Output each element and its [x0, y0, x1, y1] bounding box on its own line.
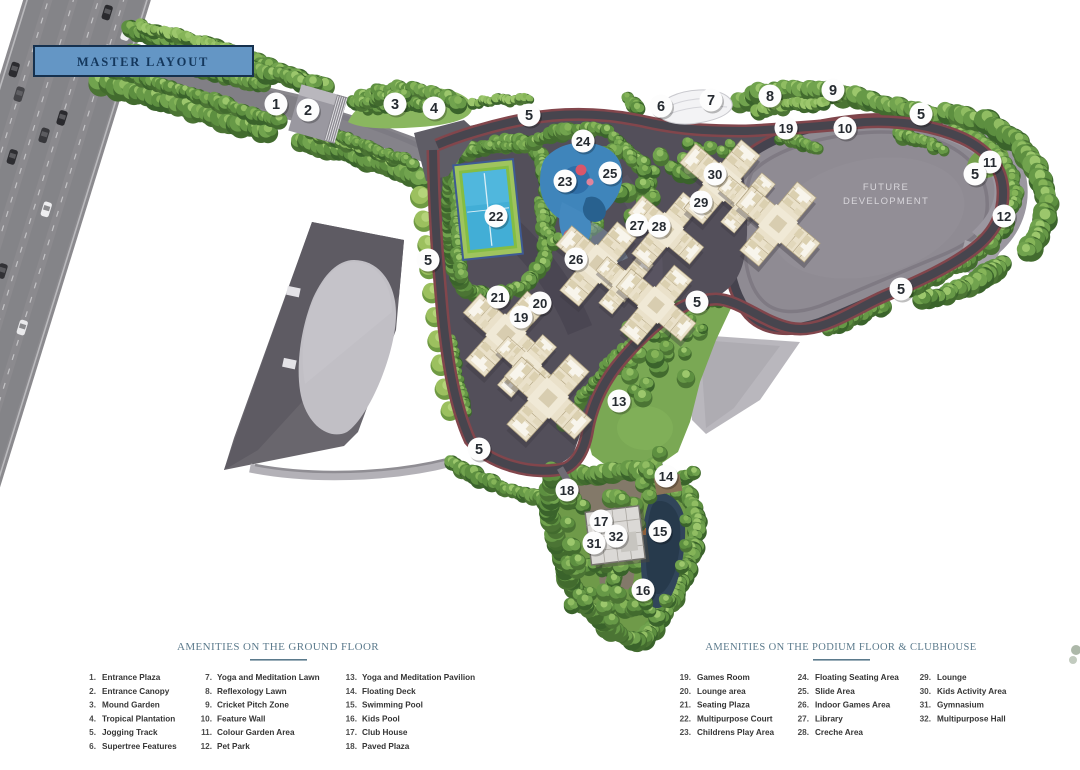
svg-text:5: 5	[693, 295, 701, 311]
svg-text:32: 32	[609, 529, 624, 544]
svg-text:7: 7	[707, 93, 715, 109]
svg-text:Library: Library	[815, 714, 843, 723]
svg-text:18.: 18.	[346, 742, 357, 751]
svg-text:10.: 10.	[201, 714, 212, 723]
svg-text:16: 16	[636, 583, 651, 598]
svg-text:21: 21	[491, 290, 506, 305]
svg-text:32.: 32.	[920, 714, 931, 723]
svg-text:5: 5	[475, 442, 483, 458]
svg-text:31: 31	[587, 536, 602, 551]
svg-text:9: 9	[829, 83, 837, 99]
svg-text:4.: 4.	[89, 714, 96, 723]
svg-text:22.: 22.	[680, 714, 691, 723]
svg-text:21.: 21.	[680, 701, 691, 710]
svg-text:Creche Area: Creche Area	[815, 728, 863, 737]
svg-text:Paved Plaza: Paved Plaza	[362, 742, 410, 751]
svg-text:17: 17	[594, 514, 609, 529]
svg-text:13.: 13.	[346, 673, 357, 682]
svg-text:22: 22	[489, 209, 504, 224]
svg-text:20.: 20.	[680, 687, 691, 696]
svg-text:Kids Activity Area: Kids Activity Area	[937, 687, 1007, 696]
svg-text:Multipurpose Hall: Multipurpose Hall	[937, 714, 1006, 723]
svg-text:11: 11	[983, 155, 997, 170]
svg-text:Games Room: Games Room	[697, 673, 750, 682]
svg-text:18: 18	[560, 483, 575, 498]
svg-text:6.: 6.	[89, 742, 96, 751]
svg-text:16.: 16.	[346, 714, 357, 723]
svg-text:23: 23	[558, 174, 573, 189]
svg-text:Swimming Pool: Swimming Pool	[362, 701, 423, 710]
svg-text:Tropical Plantation: Tropical Plantation	[102, 714, 175, 723]
svg-text:Cricket Pitch Zone: Cricket Pitch Zone	[217, 701, 289, 710]
svg-text:1.: 1.	[89, 673, 96, 682]
svg-text:Feature Wall: Feature Wall	[217, 714, 265, 723]
svg-text:5: 5	[525, 108, 533, 124]
svg-text:Lounge: Lounge	[937, 673, 967, 682]
svg-text:5: 5	[917, 107, 925, 123]
svg-text:5: 5	[424, 253, 432, 269]
svg-text:19.: 19.	[680, 673, 691, 682]
svg-text:5: 5	[971, 167, 979, 183]
svg-text:12: 12	[997, 209, 1012, 224]
svg-text:15.: 15.	[346, 701, 357, 710]
svg-text:25: 25	[603, 166, 618, 181]
svg-text:Pet Park: Pet Park	[217, 742, 250, 751]
svg-text:Indoor Games Area: Indoor Games Area	[815, 701, 891, 710]
svg-text:MASTER LAYOUT: MASTER LAYOUT	[77, 55, 209, 69]
svg-text:5.: 5.	[89, 728, 96, 737]
svg-text:3.: 3.	[89, 701, 96, 710]
svg-text:Entrance Canopy: Entrance Canopy	[102, 687, 170, 696]
svg-text:13: 13	[612, 394, 627, 409]
svg-text:7.: 7.	[205, 673, 212, 682]
svg-text:20: 20	[533, 296, 548, 311]
svg-text:Jogging Track: Jogging Track	[102, 728, 158, 737]
svg-text:26: 26	[569, 252, 584, 267]
svg-text:28: 28	[652, 219, 667, 234]
svg-text:Supertree Features: Supertree Features	[102, 742, 177, 751]
svg-text:29.: 29.	[920, 673, 931, 682]
svg-text:27.: 27.	[798, 714, 809, 723]
svg-text:Kids Pool: Kids Pool	[362, 714, 400, 723]
svg-text:Club House: Club House	[362, 728, 408, 737]
svg-text:27: 27	[630, 218, 645, 233]
svg-text:24: 24	[576, 134, 591, 149]
svg-text:19: 19	[514, 310, 529, 325]
svg-text:AMENITIES ON THE GROUND FLOOR: AMENITIES ON THE GROUND FLOOR	[177, 641, 379, 653]
svg-text:Slide Area: Slide Area	[815, 687, 855, 696]
svg-text:30.: 30.	[920, 687, 931, 696]
svg-text:28.: 28.	[798, 728, 809, 737]
svg-text:10: 10	[838, 121, 853, 136]
svg-text:9.: 9.	[205, 701, 212, 710]
svg-text:FUTURE: FUTURE	[863, 182, 909, 193]
svg-text:Multipurpose Court: Multipurpose Court	[697, 714, 773, 723]
svg-text:23.: 23.	[680, 728, 691, 737]
svg-text:11.: 11.	[201, 728, 212, 737]
svg-text:Reflexology Lawn: Reflexology Lawn	[217, 687, 287, 696]
svg-text:Seating Plaza: Seating Plaza	[697, 701, 750, 710]
svg-text:25.: 25.	[798, 687, 809, 696]
svg-text:2.: 2.	[89, 687, 96, 696]
svg-text:15: 15	[653, 524, 668, 539]
svg-text:29: 29	[694, 195, 709, 210]
svg-text:14.: 14.	[346, 687, 357, 696]
svg-text:17.: 17.	[346, 728, 357, 737]
svg-text:14: 14	[659, 469, 674, 484]
svg-text:19: 19	[779, 121, 794, 136]
svg-text:4: 4	[430, 101, 438, 117]
svg-text:1: 1	[272, 97, 280, 113]
svg-text:5: 5	[897, 282, 905, 298]
svg-text:Childrens Play Area: Childrens Play Area	[697, 728, 774, 737]
svg-text:8.: 8.	[205, 687, 212, 696]
svg-text:30: 30	[708, 167, 723, 182]
svg-text:DEVELOPMENT: DEVELOPMENT	[843, 196, 929, 207]
svg-text:3: 3	[391, 97, 399, 113]
svg-text:2: 2	[304, 103, 312, 119]
svg-text:Gymnasium: Gymnasium	[937, 701, 984, 710]
svg-text:24.: 24.	[798, 673, 809, 682]
svg-text:8: 8	[766, 89, 774, 105]
svg-text:AMENITIES ON THE PODIUM FLOOR: AMENITIES ON THE PODIUM FLOOR & CLUBHOUS…	[705, 642, 976, 653]
svg-text:Floating Seating Area: Floating Seating Area	[815, 673, 899, 682]
svg-text:Mound Garden: Mound Garden	[102, 701, 160, 710]
svg-text:6: 6	[657, 99, 665, 115]
svg-text:26.: 26.	[798, 701, 809, 710]
svg-text:Colour Garden Area: Colour Garden Area	[217, 728, 295, 737]
svg-text:Yoga and Meditation Lawn: Yoga and Meditation Lawn	[217, 673, 320, 682]
svg-text:12.: 12.	[201, 742, 212, 751]
svg-text:Floating Deck: Floating Deck	[362, 687, 416, 696]
svg-text:Yoga and Meditation Pavilion: Yoga and Meditation Pavilion	[362, 673, 475, 682]
svg-text:31.: 31.	[920, 701, 931, 710]
svg-text:Lounge area: Lounge area	[697, 687, 746, 696]
svg-text:Entrance Plaza: Entrance Plaza	[102, 673, 161, 682]
